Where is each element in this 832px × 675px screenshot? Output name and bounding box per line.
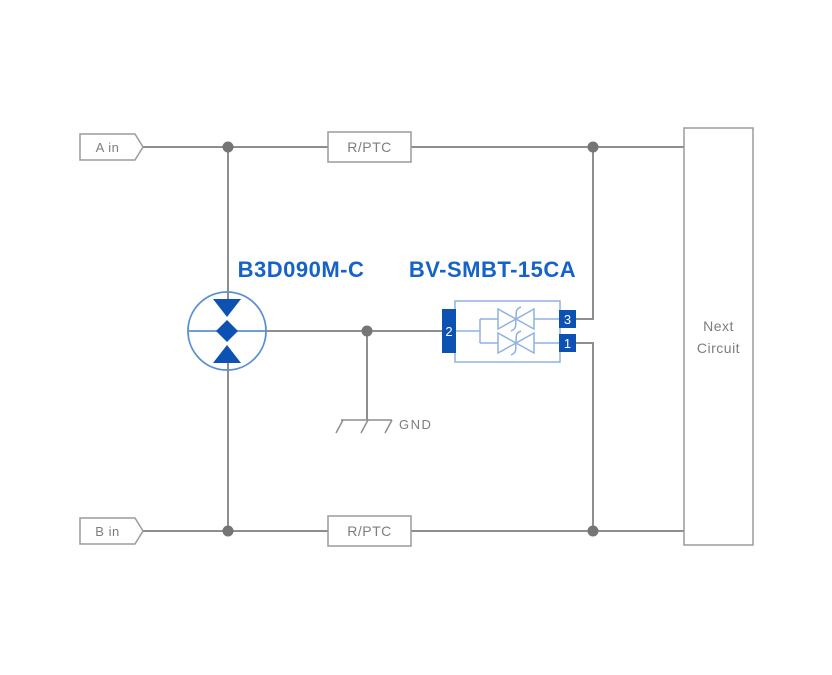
gdt-bottom-electrode-triangle <box>213 345 241 363</box>
rptc-bottom-label: R/PTC <box>328 516 411 546</box>
junction-dot <box>588 526 599 537</box>
junction-dot <box>223 142 234 153</box>
gdt-symbol <box>188 292 266 370</box>
junction-dot <box>362 326 373 337</box>
tvs-pin3-label: 3 <box>559 310 576 328</box>
junction-dot <box>223 526 234 537</box>
gdt-part-number: B3D090M-C <box>226 256 376 284</box>
a-in-label: A in <box>80 134 135 160</box>
wire-pin3-to-a <box>576 147 593 319</box>
ground-hatches <box>336 420 392 433</box>
tvs-pin2-label: 2 <box>442 309 456 353</box>
gnd-label: GND <box>399 415 447 433</box>
gdt-top-electrode-triangle <box>213 299 241 317</box>
junction-dot <box>588 142 599 153</box>
b-in-label: B in <box>80 518 135 544</box>
circuit-diagram: A in B in R/PTC R/PTC B3D090M-C BV-SMBT-… <box>0 0 832 675</box>
tvs-symbol <box>442 301 576 362</box>
rptc-top-label: R/PTC <box>328 132 411 162</box>
next-circuit-line2: Circuit <box>697 337 740 359</box>
gdt-center-diamond <box>216 320 238 342</box>
next-circuit-line1: Next <box>703 315 734 337</box>
ground-symbol <box>336 420 392 433</box>
tvs-pin1-label: 1 <box>559 334 576 352</box>
next-circuit-label: Next Circuit <box>684 312 753 362</box>
wire-pin1-to-b <box>576 343 593 531</box>
tvs-part-number: BV-SMBT-15CA <box>405 256 580 284</box>
